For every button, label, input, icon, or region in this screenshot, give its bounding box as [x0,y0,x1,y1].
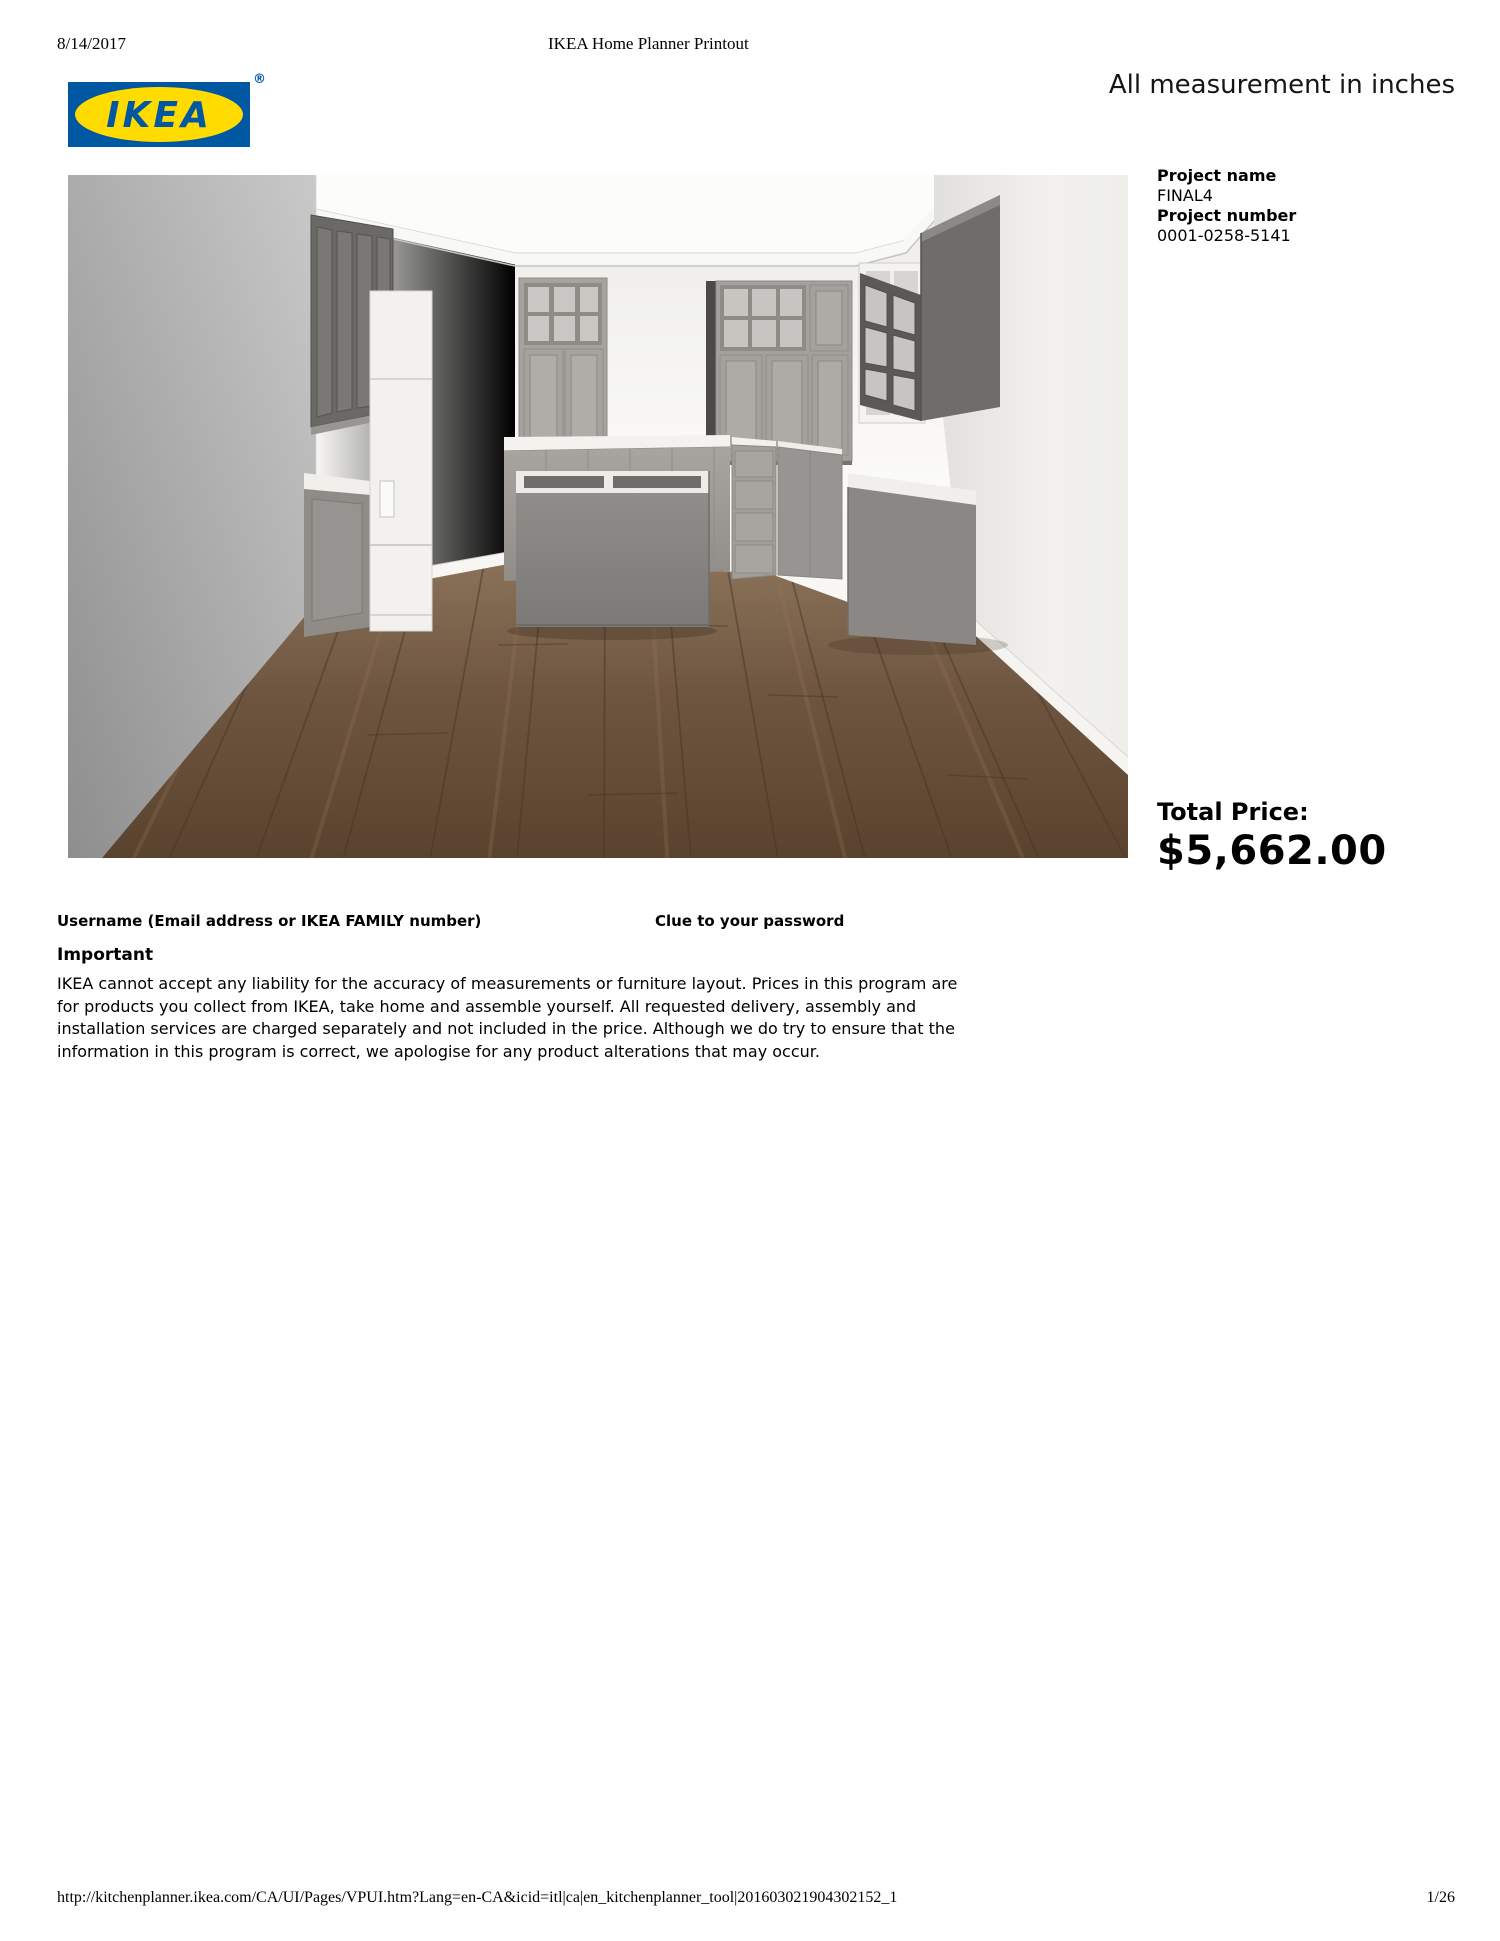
important-heading: Important [57,945,153,965]
password-clue-label: Clue to your password [655,912,844,930]
footer-url: http://kitchenplanner.ikea.com/CA/UI/Pag… [57,1889,897,1907]
project-number-value: 0001-0258-5141 [1157,226,1296,246]
logo-text: IKEA [106,95,212,136]
measurement-note: All measurement in inches [1109,70,1455,100]
printout-page: 8/14/2017 IKEA Home Planner Printout All… [0,0,1500,1941]
total-price: Total Price: $5,662.00 [1157,798,1387,874]
project-name-value: FINAL4 [1157,186,1296,206]
kitchen-render-svg [68,175,1128,858]
ikea-logo-svg: IKEA [68,82,250,147]
project-name-label: Project name [1157,166,1296,186]
important-line: installation services are charged separa… [57,1018,957,1041]
total-price-label: Total Price: [1157,798,1387,826]
project-number-label: Project number [1157,206,1296,226]
username-label: Username (Email address or IKEA FAMILY n… [57,912,481,930]
kitchen-3d-preview [68,175,1128,858]
registered-trademark-icon: ® [253,72,266,87]
important-line: for products you collect from IKEA, take… [57,996,957,1019]
page-title: IKEA Home Planner Printout [548,34,749,54]
ikea-logo-icon: IKEA [68,82,250,147]
project-info: Project name FINAL4 Project number 0001-… [1157,166,1296,246]
fridge-handle [380,481,394,517]
important-line: IKEA cannot accept any liability for the… [57,973,957,996]
total-price-value: $5,662.00 [1157,828,1387,874]
kitchen-island [507,471,717,640]
important-paragraph: IKEA cannot accept any liability for the… [57,973,957,1063]
print-date: 8/14/2017 [57,34,126,54]
important-line: information in this program is correct, … [57,1041,957,1064]
footer-page-indicator: 1/26 [1427,1889,1455,1907]
wall-cabinet-a [519,278,607,458]
